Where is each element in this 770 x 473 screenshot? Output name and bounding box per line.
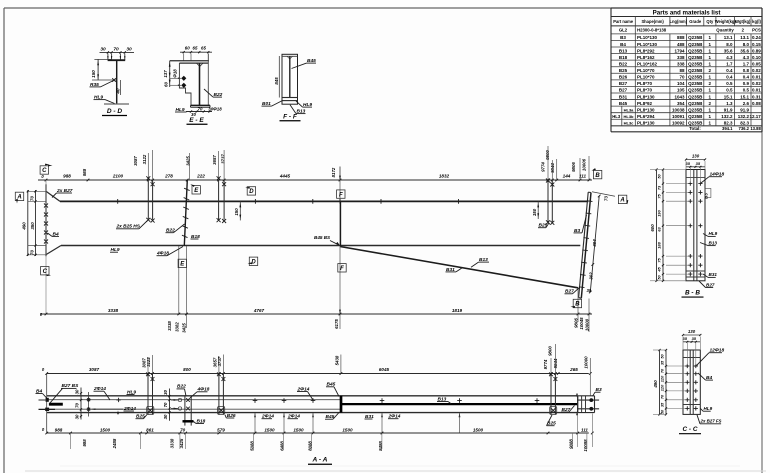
svg-text:1500: 1500 xyxy=(473,427,484,432)
svg-text:8172: 8172 xyxy=(331,167,336,177)
svg-text:265: 265 xyxy=(569,367,578,372)
svg-text:1819: 1819 xyxy=(452,308,463,313)
svg-text:Lng(mm): Lng(mm) xyxy=(669,19,687,24)
svg-text:190: 190 xyxy=(657,209,662,216)
svg-text:88: 88 xyxy=(679,68,685,73)
svg-text:2x B27 FS: 2x B27 FS xyxy=(700,419,722,424)
svg-text:0.01: 0.01 xyxy=(752,88,761,93)
svg-text:C - C: C - C xyxy=(683,426,698,433)
svg-text:70: 70 xyxy=(29,196,34,201)
svg-text:F - F: F - F xyxy=(283,113,298,120)
svg-text:988: 988 xyxy=(63,174,71,179)
svg-text:1794: 1794 xyxy=(674,48,685,53)
svg-text:350: 350 xyxy=(30,222,35,230)
svg-text:0.15: 0.15 xyxy=(752,42,761,47)
svg-text:PL10*130: PL10*130 xyxy=(637,42,658,47)
svg-text:Weight(kg): Weight(kg) xyxy=(715,19,737,24)
svg-text:132.2: 132.2 xyxy=(738,114,750,119)
svg-text:70: 70 xyxy=(198,106,203,111)
svg-text:C: C xyxy=(42,168,47,174)
svg-text:B45 BS: B45 BS xyxy=(314,235,331,240)
svg-text:B18: B18 xyxy=(619,55,628,60)
svg-text:1500: 1500 xyxy=(342,427,353,432)
svg-text:111: 111 xyxy=(581,427,588,432)
svg-text:3122: 3122 xyxy=(146,357,151,367)
svg-text:0.9: 0.9 xyxy=(743,81,750,86)
svg-text:PL8*162: PL8*162 xyxy=(637,55,655,60)
svg-text:1.3: 1.3 xyxy=(726,101,733,106)
svg-text:0.24: 0.24 xyxy=(752,35,761,40)
svg-text:0.02: 0.02 xyxy=(752,81,761,86)
svg-text:2100: 2100 xyxy=(112,174,124,179)
svg-text:B3: B3 xyxy=(704,193,709,199)
svg-text:HL3c: HL3c xyxy=(624,121,635,126)
svg-text:B31: B31 xyxy=(619,94,628,99)
svg-text:988: 988 xyxy=(82,168,87,176)
svg-text:105: 105 xyxy=(677,88,685,93)
svg-text:35.6: 35.6 xyxy=(724,48,733,53)
svg-text:Shape(mm): Shape(mm) xyxy=(641,19,664,24)
svg-text:3382: 3382 xyxy=(174,322,179,332)
svg-text:30: 30 xyxy=(586,288,591,293)
svg-text:1500: 1500 xyxy=(293,427,304,432)
svg-text:13.1: 13.1 xyxy=(724,35,733,40)
svg-text:70: 70 xyxy=(180,427,186,432)
svg-text:488: 488 xyxy=(677,42,685,47)
svg-text:30: 30 xyxy=(126,47,132,53)
svg-text:Q235B: Q235B xyxy=(688,88,703,93)
svg-text:10045: 10045 xyxy=(579,317,584,330)
svg-text:0.4: 0.4 xyxy=(743,75,750,80)
svg-text:91.9: 91.9 xyxy=(740,107,749,112)
svg-text:144: 144 xyxy=(563,174,571,179)
svg-text:338: 338 xyxy=(677,61,685,66)
svg-text:338: 338 xyxy=(677,55,685,60)
svg-text:Φ18: Φ18 xyxy=(172,69,177,78)
svg-text:4.3: 4.3 xyxy=(743,55,750,60)
svg-text:Q235B: Q235B xyxy=(688,101,703,106)
svg-text:B27: B27 xyxy=(706,282,715,287)
svg-text:Parts and materials list: Parts and materials list xyxy=(653,9,721,16)
svg-text:A: A xyxy=(619,198,624,204)
svg-text:B: B xyxy=(575,302,580,308)
svg-text:2488: 2488 xyxy=(112,438,117,449)
svg-text:490: 490 xyxy=(653,380,658,389)
svg-text:888: 888 xyxy=(677,35,685,40)
svg-text:Q235B: Q235B xyxy=(688,48,703,53)
svg-text:6175: 6175 xyxy=(334,319,339,329)
svg-text:H2300-0-8*138: H2300-0-8*138 xyxy=(637,28,667,33)
svg-text:0.10: 0.10 xyxy=(752,55,761,60)
svg-text:PL10*162: PL10*162 xyxy=(637,61,658,66)
svg-text:60: 60 xyxy=(164,82,169,87)
svg-text:HL3: HL3 xyxy=(612,114,621,119)
svg-text:Grade: Grade xyxy=(689,19,702,24)
svg-text:70: 70 xyxy=(113,47,119,53)
svg-text:9800: 9800 xyxy=(545,150,550,160)
svg-text:0.5: 0.5 xyxy=(726,88,733,93)
svg-text:5438: 5438 xyxy=(335,355,340,365)
svg-text:1500: 1500 xyxy=(100,427,111,432)
svg-text:Q235B: Q235B xyxy=(688,94,703,99)
svg-text:0.01: 0.01 xyxy=(752,75,761,80)
svg-text:D: D xyxy=(251,260,256,266)
svg-text:Q235B: Q235B xyxy=(688,75,703,80)
svg-text:10000: 10000 xyxy=(584,356,589,369)
svg-text:10038: 10038 xyxy=(672,107,685,112)
svg-text:GL2: GL2 xyxy=(619,28,628,33)
svg-text:30: 30 xyxy=(163,414,168,419)
svg-text:B27: B27 xyxy=(619,88,628,93)
svg-text:B31: B31 xyxy=(709,272,718,277)
svg-text:40: 40 xyxy=(116,88,121,95)
svg-text:PL8*292: PL8*292 xyxy=(637,48,655,53)
svg-text:2.6: 2.6 xyxy=(743,101,750,106)
svg-text:3338: 3338 xyxy=(167,321,172,331)
svg-text:Q235B: Q235B xyxy=(688,121,703,126)
svg-text:4767: 4767 xyxy=(253,308,265,313)
svg-text:3122: 3122 xyxy=(142,154,147,164)
svg-text:988: 988 xyxy=(55,427,63,432)
svg-text:845: 845 xyxy=(274,77,279,85)
svg-text:F: F xyxy=(339,192,343,198)
svg-text:10092: 10092 xyxy=(672,121,685,126)
svg-text:0.4: 0.4 xyxy=(726,68,733,73)
svg-text:Q235B: Q235B xyxy=(688,61,703,66)
svg-text:354: 354 xyxy=(677,101,685,106)
svg-text:B - B: B - B xyxy=(685,290,700,297)
svg-text:D: D xyxy=(249,189,254,195)
svg-text:3338: 3338 xyxy=(169,438,174,448)
svg-text:PCS: PCS xyxy=(752,28,761,33)
svg-text:13.88: 13.88 xyxy=(750,126,761,131)
svg-text:PL8*92: PL8*92 xyxy=(637,101,653,106)
svg-text:800: 800 xyxy=(183,367,191,372)
svg-text:8.0: 8.0 xyxy=(726,42,733,47)
svg-text:9774: 9774 xyxy=(540,162,545,172)
svg-text:394.1: 394.1 xyxy=(722,126,733,131)
svg-text:70: 70 xyxy=(29,250,34,255)
svg-text:F: F xyxy=(340,266,344,272)
svg-text:B27: B27 xyxy=(619,81,628,86)
svg-text:861: 861 xyxy=(146,427,154,432)
svg-text:PL8*130: PL8*130 xyxy=(637,107,655,112)
svg-text:PL8*130: PL8*130 xyxy=(637,121,655,126)
svg-text:0.8: 0.8 xyxy=(743,68,750,73)
svg-text:65: 65 xyxy=(201,46,206,51)
svg-text:278: 278 xyxy=(164,174,173,179)
svg-text:Wgt(kg): Wgt(kg) xyxy=(735,19,751,24)
svg-text:B25: B25 xyxy=(619,68,628,73)
svg-text:150: 150 xyxy=(532,208,537,216)
svg-text:3338: 3338 xyxy=(108,308,119,313)
svg-text:0.08: 0.08 xyxy=(752,101,761,106)
svg-text:E - E: E - E xyxy=(189,117,204,124)
svg-text:3737: 3737 xyxy=(221,154,226,164)
svg-text:70: 70 xyxy=(679,75,685,80)
svg-text:9806: 9806 xyxy=(571,162,576,172)
svg-text:3425: 3425 xyxy=(182,323,187,333)
svg-text:0.89: 0.89 xyxy=(752,48,761,53)
svg-text:91.9: 91.9 xyxy=(724,107,733,112)
svg-text:B22: B22 xyxy=(619,61,628,66)
svg-text:104: 104 xyxy=(677,81,685,86)
svg-text:30: 30 xyxy=(163,390,168,395)
svg-text:35: 35 xyxy=(696,161,701,166)
svg-text:Q235B: Q235B xyxy=(688,68,703,73)
svg-text:10091: 10091 xyxy=(672,114,685,119)
svg-text:137: 137 xyxy=(163,70,168,78)
svg-text:120: 120 xyxy=(660,384,665,391)
svg-text:13.1: 13.1 xyxy=(740,35,749,40)
svg-text:9806: 9806 xyxy=(573,318,578,328)
svg-text:3087: 3087 xyxy=(133,156,138,166)
svg-text:Quantity: Quantity xyxy=(716,28,734,33)
svg-text:C: C xyxy=(43,269,48,275)
svg-text:Q235B: Q235B xyxy=(688,114,703,119)
svg-text:1500: 1500 xyxy=(264,427,275,432)
svg-text:Q235B: Q235B xyxy=(688,35,703,40)
svg-text:PL10*70: PL10*70 xyxy=(637,75,655,80)
svg-text:394: 394 xyxy=(592,239,597,247)
svg-text:B4: B4 xyxy=(620,42,626,47)
svg-text:B13: B13 xyxy=(619,48,628,53)
svg-text:Qty: Qty xyxy=(706,19,714,24)
svg-text:0.5: 0.5 xyxy=(726,81,733,86)
svg-text:B13: B13 xyxy=(709,240,718,245)
svg-text:0.5: 0.5 xyxy=(743,88,750,93)
svg-text:1.7: 1.7 xyxy=(726,61,733,66)
svg-text:8.0: 8.0 xyxy=(743,42,750,47)
svg-text:9774: 9774 xyxy=(543,359,548,369)
svg-text:B26: B26 xyxy=(619,75,628,80)
svg-text:0.02: 0.02 xyxy=(752,68,761,73)
svg-text:PL8*70: PL8*70 xyxy=(637,81,653,86)
svg-text:Q235B: Q235B xyxy=(688,42,703,47)
svg-text:0.05: 0.05 xyxy=(752,61,761,66)
svg-text:130: 130 xyxy=(692,154,700,159)
svg-text:1832: 1832 xyxy=(439,174,450,179)
svg-text:60: 60 xyxy=(185,46,190,51)
svg-text:30: 30 xyxy=(100,47,106,53)
svg-text:9844: 9844 xyxy=(550,163,555,173)
svg-text:600: 600 xyxy=(650,224,655,232)
svg-text:3657: 3657 xyxy=(212,155,217,165)
svg-text:9800: 9800 xyxy=(548,346,553,356)
svg-text:B3: B3 xyxy=(620,35,626,40)
svg-text:Part name: Part name xyxy=(613,19,634,24)
svg-text:130: 130 xyxy=(688,329,696,334)
svg-text:1.7: 1.7 xyxy=(743,61,750,66)
svg-text:188: 188 xyxy=(657,241,662,248)
svg-text:82.3: 82.3 xyxy=(724,121,733,126)
svg-text:A - A: A - A xyxy=(312,457,328,464)
svg-text:PL6*294: PL6*294 xyxy=(637,114,655,119)
svg-text:kg(l): kg(l) xyxy=(752,19,761,24)
svg-text:6045: 6045 xyxy=(379,367,390,372)
svg-text:120: 120 xyxy=(660,375,665,382)
svg-text:HL3b: HL3b xyxy=(624,114,635,119)
svg-text:73: 73 xyxy=(604,196,609,201)
svg-text:35: 35 xyxy=(692,336,697,341)
svg-text:0.31: 0.31 xyxy=(752,94,761,99)
svg-text:Q235B: Q235B xyxy=(688,81,703,86)
svg-text:150: 150 xyxy=(234,208,239,216)
svg-text:65: 65 xyxy=(193,46,198,51)
svg-text:10006: 10006 xyxy=(581,158,586,171)
svg-text:579: 579 xyxy=(217,427,225,432)
svg-text:PL10*70: PL10*70 xyxy=(637,68,655,73)
svg-text:PL8*130: PL8*130 xyxy=(637,94,655,99)
svg-text:132.2: 132.2 xyxy=(721,114,733,119)
svg-text:736.2: 736.2 xyxy=(739,126,750,131)
svg-text:PL8*70: PL8*70 xyxy=(637,88,653,93)
svg-text:Q235B: Q235B xyxy=(688,55,703,60)
svg-text:30Φ18: 30Φ18 xyxy=(208,107,222,112)
svg-text:150: 150 xyxy=(91,70,96,78)
svg-text:0.4: 0.4 xyxy=(726,75,733,80)
svg-text:35.6: 35.6 xyxy=(740,48,749,53)
svg-text:B45: B45 xyxy=(619,101,628,106)
svg-text:HL9: HL9 xyxy=(709,231,718,236)
svg-text:Q235B: Q235B xyxy=(688,107,703,112)
svg-text:Total:: Total: xyxy=(689,126,701,131)
svg-text:4445: 4445 xyxy=(279,174,291,179)
svg-text:HL9: HL9 xyxy=(704,406,713,411)
svg-text:B: B xyxy=(595,173,600,179)
svg-text:PL10*130: PL10*130 xyxy=(637,35,658,40)
svg-text:12.17: 12.17 xyxy=(750,114,762,119)
svg-text:1043: 1043 xyxy=(674,94,685,99)
svg-text:30: 30 xyxy=(75,414,80,419)
svg-text:70: 70 xyxy=(163,402,168,407)
svg-text:70: 70 xyxy=(75,403,80,408)
svg-text:82.3: 82.3 xyxy=(740,121,749,126)
svg-text:3087: 3087 xyxy=(89,367,100,372)
svg-text:45: 45 xyxy=(657,267,662,273)
svg-text:490: 490 xyxy=(21,222,26,231)
svg-text:4.3: 4.3 xyxy=(726,55,733,60)
svg-text:988: 988 xyxy=(82,439,87,447)
svg-text:3737: 3737 xyxy=(217,356,222,366)
svg-text:HL3a: HL3a xyxy=(624,107,635,112)
svg-text:302: 302 xyxy=(589,272,594,280)
svg-text:222: 222 xyxy=(196,174,205,179)
svg-text:15.1: 15.1 xyxy=(724,94,733,99)
svg-text:30: 30 xyxy=(75,389,80,394)
svg-text:D - D: D - D xyxy=(107,108,122,115)
svg-text:15.1: 15.1 xyxy=(740,94,749,99)
